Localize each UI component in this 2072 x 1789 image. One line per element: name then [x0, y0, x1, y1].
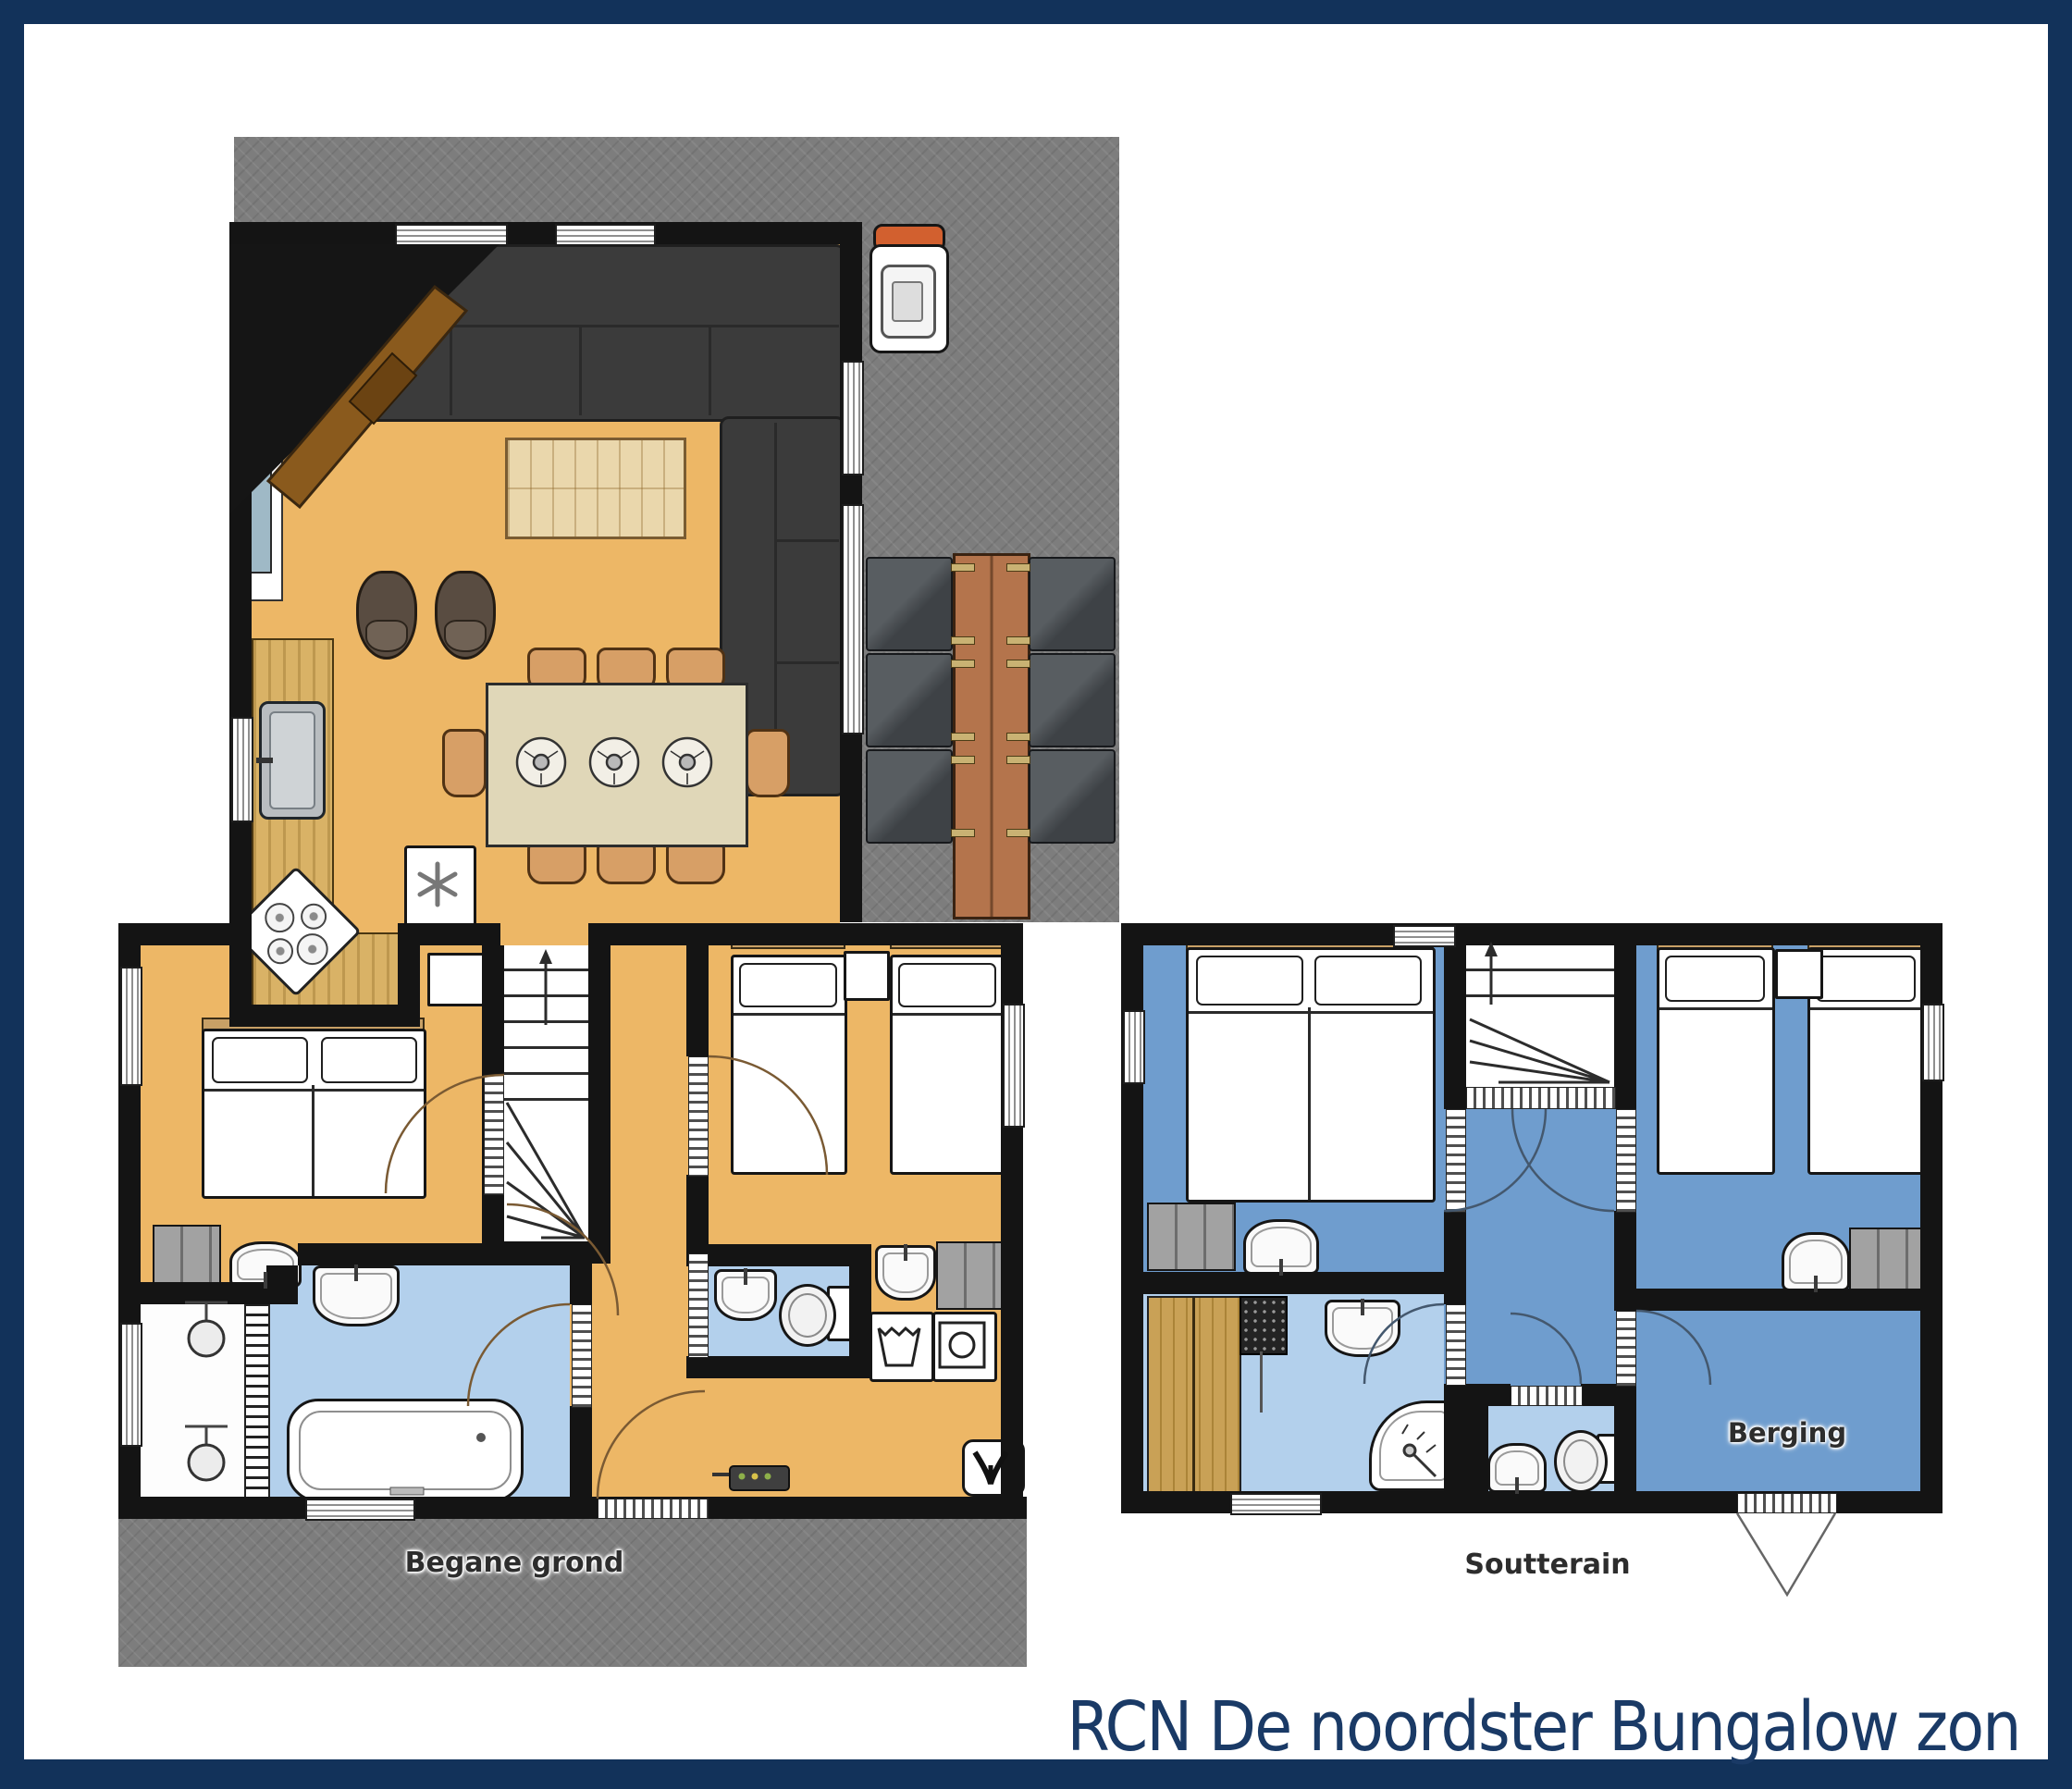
washer-icon — [879, 1328, 919, 1365]
door-swing-arc — [386, 1056, 827, 1499]
bird-icon — [975, 1452, 1006, 1484]
dryer-icon — [940, 1323, 984, 1367]
page-title: RCN De noordster Bungalow zon — [1067, 1687, 2020, 1767]
shower-head-icon — [1402, 1425, 1436, 1476]
doormat-dots — [712, 1474, 771, 1480]
shower-fixture — [185, 1302, 228, 1480]
floorplan-canvas: Begane grond Soutterain Berging RCN De n… — [0, 0, 2072, 1789]
exterior-door-leaves — [1737, 1513, 1835, 1595]
bathtub-fittings — [390, 1433, 486, 1495]
stairs-fan — [1470, 1019, 1609, 1082]
ground-floor-label: Begane grond — [405, 1547, 624, 1579]
stairs-arrow — [539, 949, 552, 1025]
place-settings — [517, 738, 711, 786]
stairs-arrow — [1485, 942, 1498, 1005]
storage-room-label: Berging — [1728, 1417, 1846, 1449]
sheet-background: Begane grond Soutterain Berging — [24, 24, 2048, 1759]
linework-overlay — [24, 24, 2072, 1789]
basement-label: Soutterain — [1464, 1548, 1630, 1581]
door-swing-arc — [1364, 1109, 1710, 1385]
freezer-icon — [420, 864, 455, 905]
stairs-fan — [507, 1103, 585, 1238]
